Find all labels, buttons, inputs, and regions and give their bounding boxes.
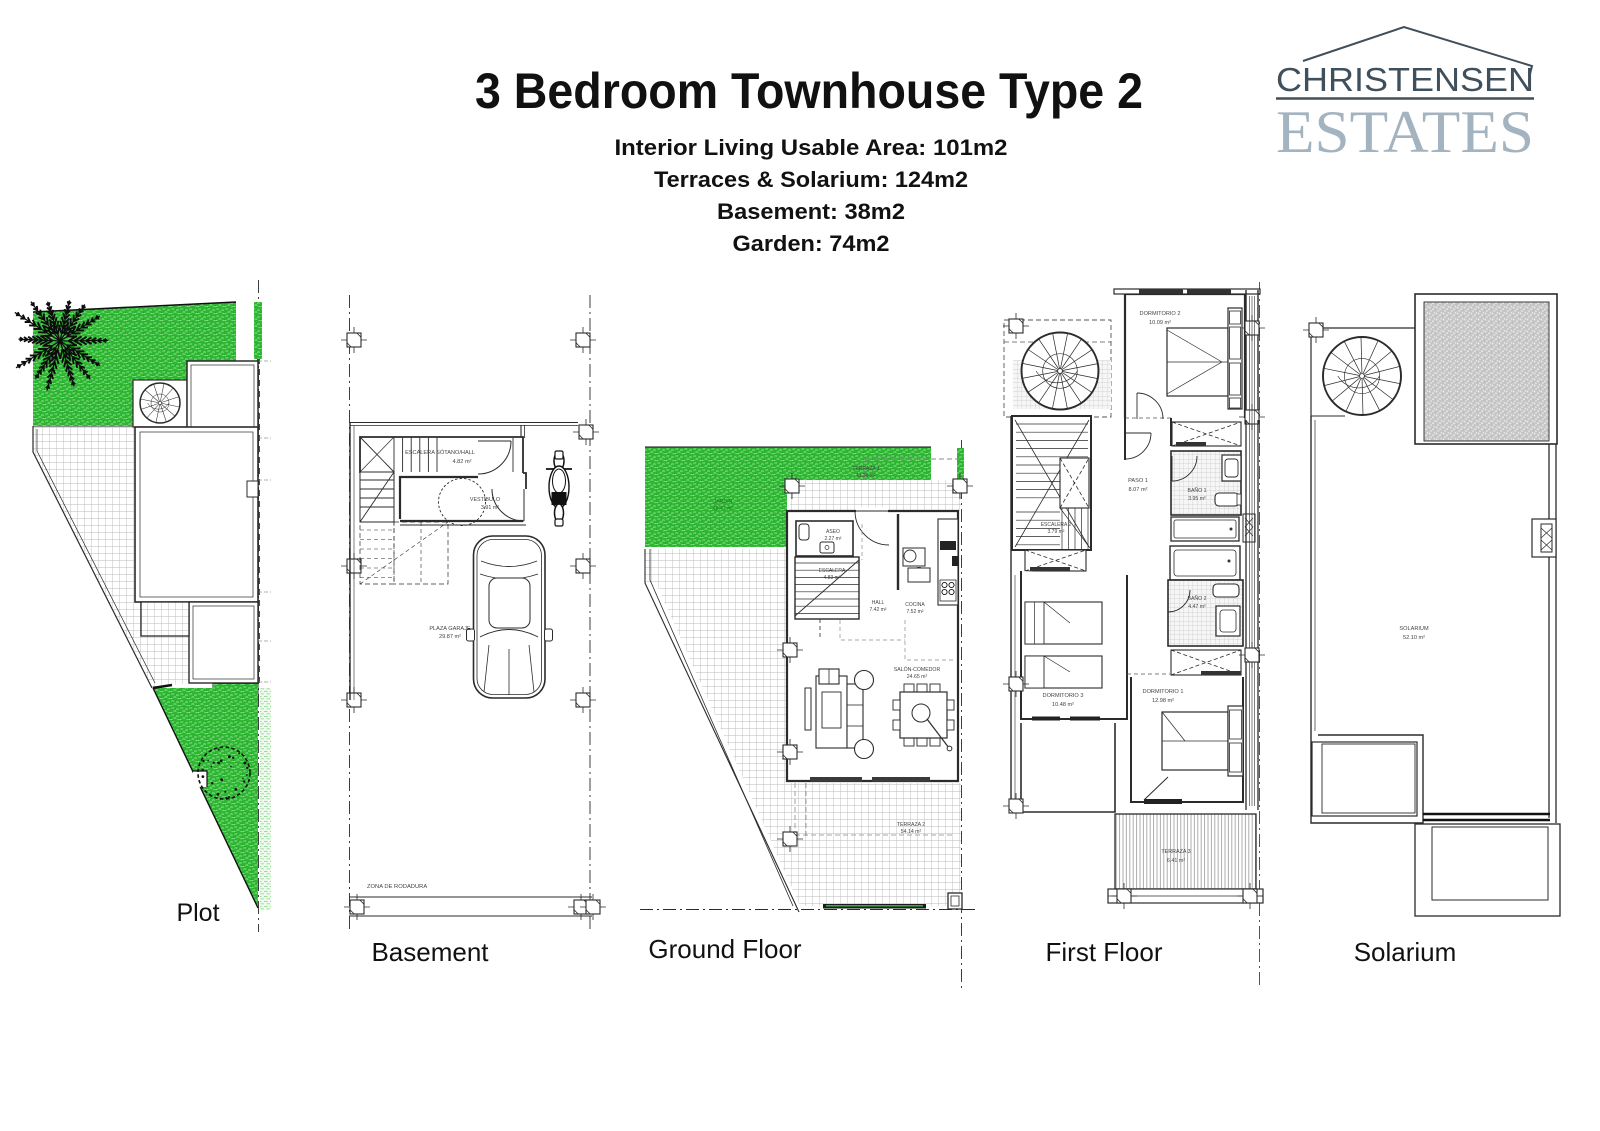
svg-text:TERRAZA 3: TERRAZA 3 [1161, 849, 1190, 855]
svg-text:HALL: HALL [872, 600, 885, 606]
svg-text:Plot: Plot [176, 899, 219, 927]
svg-text:Solarium: Solarium [1354, 937, 1457, 967]
svg-text:ESTATES: ESTATES [1276, 99, 1534, 165]
svg-text:DORMITORIO 3: DORMITORIO 3 [1043, 693, 1084, 699]
svg-text:12.98 m²: 12.98 m² [1152, 698, 1174, 704]
svg-text:BAÑO 2: BAÑO 2 [1187, 595, 1206, 602]
svg-text:7.52 m²: 7.52 m² [907, 609, 924, 615]
svg-text:3.79 m²: 3.79 m² [1048, 529, 1065, 535]
svg-text:SOLARIUM: SOLARIUM [1399, 626, 1429, 632]
svg-text:3.95 m²: 3.95 m² [1188, 496, 1206, 502]
svg-text:54.14 m²: 54.14 m² [901, 829, 922, 835]
svg-text:8.07 m²: 8.07 m² [1129, 487, 1148, 493]
svg-text:TERRAZA 2: TERRAZA 2 [897, 822, 925, 828]
svg-text:CHRISTENSEN: CHRISTENSEN [1276, 61, 1534, 98]
svg-text:2.27 m²: 2.27 m² [825, 536, 842, 542]
svg-text:24.65 m²: 24.65 m² [907, 674, 928, 680]
svg-text:3 Bedroom Townhouse Type 2: 3 Bedroom Townhouse Type 2 [475, 63, 1143, 119]
svg-text:4.83 m²: 4.83 m² [824, 575, 841, 581]
svg-text:Ground Floor: Ground Floor [648, 934, 802, 964]
svg-text:7.42 m²: 7.42 m² [870, 607, 887, 613]
svg-text:3.91 m²: 3.91 m² [481, 505, 499, 511]
svg-text:Garden: 74m2: Garden: 74m2 [733, 231, 890, 256]
svg-text:TERRAZA 1: TERRAZA 1 [852, 466, 879, 472]
svg-text:4.47 m²: 4.47 m² [1188, 604, 1206, 610]
svg-text:ASEO: ASEO [826, 529, 840, 535]
svg-text:48.47 m²: 48.47 m² [713, 506, 734, 512]
svg-text:COCINA: COCINA [905, 602, 925, 608]
svg-text:BAÑO 1: BAÑO 1 [1187, 487, 1206, 494]
svg-text:6.41 m²: 6.41 m² [1167, 858, 1185, 864]
svg-text:11.36 m²: 11.36 m² [856, 473, 876, 479]
svg-text:ESCALERA SÓTANO/HALL: ESCALERA SÓTANO/HALL [405, 449, 475, 456]
svg-text:PASO 1: PASO 1 [1128, 478, 1148, 484]
svg-text:52.10 m²: 52.10 m² [1403, 635, 1425, 641]
svg-text:Interior Living Usable Area: 1: Interior Living Usable Area: 101m2 [615, 135, 1008, 160]
svg-text:10.09 m²: 10.09 m² [1149, 320, 1171, 326]
svg-text:Terraces & Solarium: 124m2: Terraces & Solarium: 124m2 [654, 167, 968, 192]
svg-text:ZONA DE RODADURA: ZONA DE RODADURA [367, 884, 427, 890]
svg-text:PLAZA GARAJE: PLAZA GARAJE [429, 626, 471, 632]
svg-text:First Floor: First Floor [1046, 937, 1163, 967]
svg-text:SALÓN-COMEDOR: SALÓN-COMEDOR [894, 666, 941, 673]
svg-text:Basement: 38m2: Basement: 38m2 [717, 199, 905, 224]
svg-text:4.82 m²: 4.82 m² [453, 459, 472, 465]
svg-text:ESCALERA: ESCALERA [819, 568, 846, 574]
svg-text:VESTIBULO: VESTIBULO [470, 497, 500, 503]
svg-text:DORMITORIO 1: DORMITORIO 1 [1143, 689, 1184, 695]
svg-text:29.87 m²: 29.87 m² [439, 634, 461, 640]
svg-text:Basement: Basement [371, 937, 489, 967]
svg-text:DORMITORIO 2: DORMITORIO 2 [1140, 311, 1181, 317]
svg-text:ESCALERA 2: ESCALERA 2 [1041, 522, 1072, 528]
svg-text:10.48 m²: 10.48 m² [1052, 702, 1074, 708]
svg-text:JARDIN: JARDIN [714, 499, 733, 505]
